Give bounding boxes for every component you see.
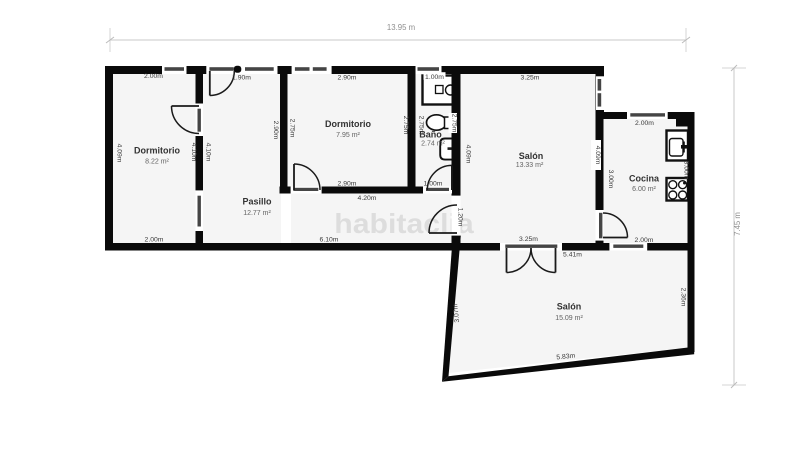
svg-text:4.10m: 4.10m [190,143,197,162]
svg-text:Salón: Salón [557,302,582,312]
svg-text:1.20m: 1.20m [457,208,464,227]
svg-text:Pasillo: Pasillo [242,197,272,207]
svg-text:1.00m: 1.00m [424,181,443,188]
svg-text:7.95 m²: 7.95 m² [336,132,360,139]
svg-text:Baño: Baño [419,130,442,140]
svg-text:2.75m: 2.75m [289,119,296,138]
svg-text:Dormitorio: Dormitorio [325,119,372,129]
svg-text:2.75m: 2.75m [451,114,458,133]
svg-text:2.36m: 2.36m [680,288,687,307]
svg-text:2.00m: 2.00m [145,237,164,244]
svg-text:6.10m: 6.10m [320,237,339,244]
svg-text:6.00 m²: 6.00 m² [632,186,656,193]
svg-text:4.10m: 4.10m [205,143,212,162]
svg-text:1.00m: 1.00m [425,74,444,81]
svg-text:4.09m: 4.09m [465,145,472,164]
svg-text:3.00m: 3.00m [607,170,614,189]
svg-text:2.90m: 2.90m [272,121,279,140]
svg-text:2.00m: 2.00m [144,73,163,80]
svg-text:13.33 m²: 13.33 m² [516,162,544,169]
svg-text:2.75m: 2.75m [402,116,409,135]
svg-text:1.90m: 1.90m [232,75,251,82]
svg-text:5.41m: 5.41m [563,252,582,259]
svg-text:2.00m: 2.00m [635,120,654,127]
svg-text:Dormitorio: Dormitorio [134,146,181,156]
svg-text:2.90m: 2.90m [338,181,357,188]
svg-text:3.00m: 3.00m [683,161,690,180]
svg-text:4.09m: 4.09m [594,146,601,165]
svg-text:3.25m: 3.25m [519,236,538,243]
svg-text:4.20m: 4.20m [358,195,377,202]
svg-text:2.00m: 2.00m [635,237,654,244]
svg-text:2.74 m²: 2.74 m² [421,141,445,148]
svg-text:7.45 m: 7.45 m [733,212,742,236]
svg-text:2.90m: 2.90m [338,75,357,82]
svg-text:12.77 m²: 12.77 m² [243,210,271,217]
svg-text:13.95 m: 13.95 m [387,23,415,32]
svg-text:Salón: Salón [519,151,544,161]
svg-text:15.09 m²: 15.09 m² [555,315,583,322]
svg-text:8.22 m²: 8.22 m² [145,159,169,166]
svg-text:Cocina: Cocina [629,174,660,184]
svg-text:4.09m: 4.09m [116,144,123,163]
svg-text:3.25m: 3.25m [521,75,540,82]
